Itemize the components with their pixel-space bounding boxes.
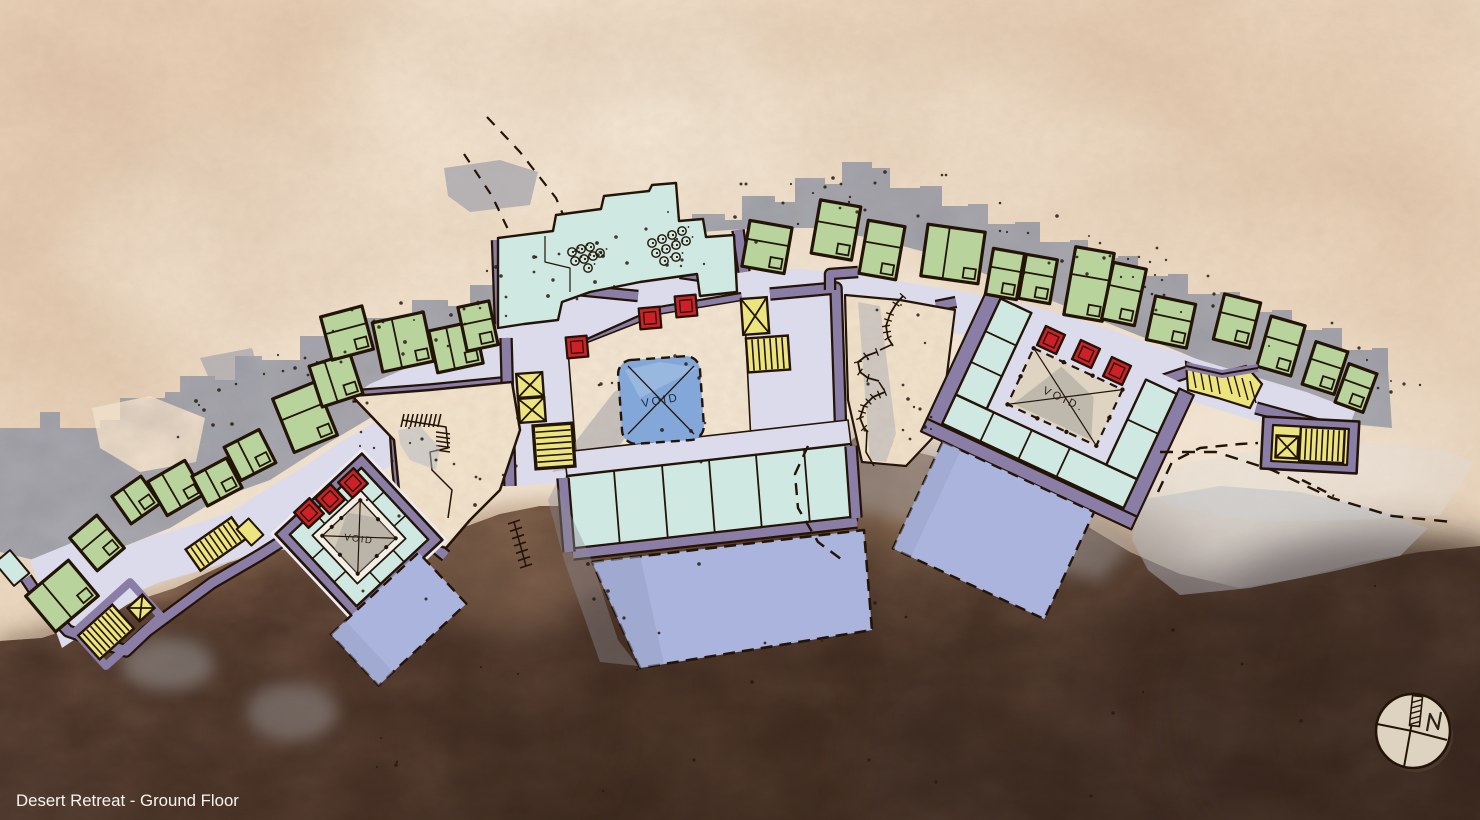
svg-text:Desert Retreat - Ground Floor: Desert Retreat - Ground Floor bbox=[16, 791, 239, 810]
